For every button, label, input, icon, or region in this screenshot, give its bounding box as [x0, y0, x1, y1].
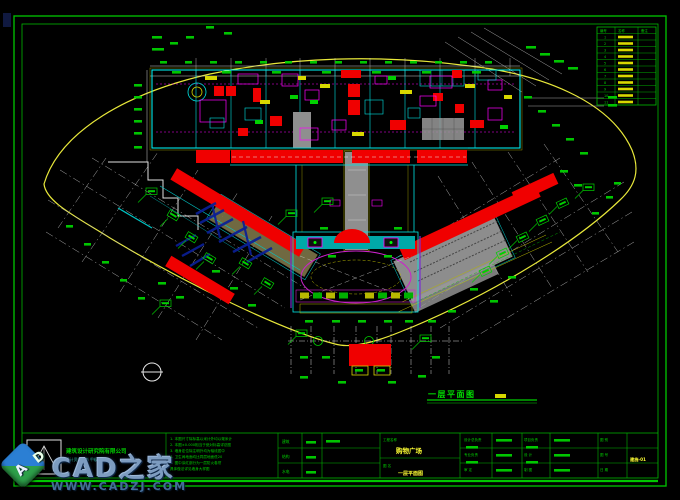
plan-shape: [238, 128, 248, 136]
plan-shape: [452, 70, 462, 78]
plan-text: 日 期: [600, 467, 609, 472]
dimension-text-blob: [152, 36, 162, 39]
dimension-text-blob: [422, 71, 431, 74]
dimension-text-blob: [120, 279, 127, 282]
callout-leader: [138, 195, 146, 203]
schedule-row-name: [618, 55, 633, 58]
dimension-text-blob: [235, 61, 242, 64]
callout-leader: [278, 217, 286, 225]
schedule-row-name: [618, 94, 633, 97]
schedule-row-name: [618, 81, 633, 84]
plan-shape: [253, 88, 261, 102]
dimension-text-blob: [310, 61, 317, 64]
dimension-text-blob: [300, 356, 308, 359]
callout-leader: [529, 224, 537, 232]
plan-shape: [500, 125, 508, 129]
dimension-text-blob: [432, 356, 440, 359]
schedule-row-name: [618, 42, 633, 45]
plan-shape: [305, 90, 319, 100]
dimension-text-blob: [360, 61, 367, 64]
dimension-text-blob: [554, 454, 570, 457]
plan-text: 项目负责: [524, 437, 538, 442]
plan-shape: [58, 158, 106, 228]
schedule-header: 名称: [618, 28, 625, 33]
dimension-text-blob: [206, 26, 214, 29]
dimension-text-blob: [138, 297, 145, 300]
dimension-text-blob: [410, 61, 417, 64]
plan-shape: [332, 120, 346, 130]
plan-shape: [484, 28, 562, 74]
schedule-row-no: 2: [604, 42, 606, 46]
entrance-canopy: [349, 344, 391, 366]
dimension-text-blob: [377, 369, 385, 372]
plan-shape: [200, 100, 226, 122]
dimension-text-blob: [134, 132, 142, 135]
dimension-text-blob: [272, 71, 281, 74]
plan-shape: [391, 293, 400, 299]
dimension-text-blob: [300, 376, 308, 379]
dimension-text-blob: [540, 53, 550, 56]
plan-shape: [488, 108, 502, 120]
plan-shape: [375, 76, 387, 84]
plan-shape: [210, 118, 224, 128]
dimension-callout-text: [298, 332, 305, 334]
plan-shape: [348, 100, 360, 115]
plan-shape: [205, 76, 217, 80]
plan-shape: [298, 76, 306, 80]
dimension-text-blob: [384, 255, 392, 258]
plan-text: 设 计: [524, 452, 533, 457]
schedule-row-no: 6: [604, 68, 606, 72]
plan-shape: [238, 74, 258, 84]
dimension-text-blob: [158, 282, 166, 285]
schedule-row-no: 7: [604, 74, 606, 78]
corner-smudge: [3, 13, 11, 27]
dimension-text-blob: [170, 42, 178, 45]
plan-text: 专业负责: [464, 452, 478, 457]
dimension-text-blob: [460, 61, 467, 64]
plan-shape: [320, 84, 330, 88]
drawing-title-text: 一层平面图: [428, 390, 476, 399]
floor-plan-drawing: 一层平面图建筑设计研究院有限公司设计资质证书 甲级1. 本图尺寸除标高以米计外均…: [0, 0, 680, 500]
callout-leader: [160, 219, 168, 227]
dimension-text-blob: [230, 287, 238, 290]
plan-shape: [488, 80, 502, 90]
dimension-text-blob: [332, 320, 340, 323]
dimension-text-blob: [222, 71, 231, 74]
cad-drawing-canvas: 一层平面图建筑设计研究院有限公司设计资质证书 甲级1. 本图尺寸除标高以米计外均…: [0, 0, 680, 500]
dimension-text-blob: [466, 446, 478, 449]
schedule-row-no: 4: [604, 55, 606, 59]
dimension-text-blob: [394, 227, 402, 230]
dimension-callout-text: [559, 201, 566, 206]
dimension-text-blob: [84, 243, 91, 246]
callout-leader: [509, 241, 517, 249]
schedule-row-no: 1: [604, 35, 606, 39]
dimension-callout-text: [148, 190, 155, 192]
plan-text: 水电: [282, 469, 290, 474]
plan-shape: [260, 100, 270, 104]
dimension-text-blob: [306, 441, 316, 444]
corridor-red: [231, 150, 343, 163]
plan-shape: [270, 116, 282, 126]
dimension-text-blob: [355, 369, 363, 372]
plan-shape: [404, 293, 413, 299]
left-wing-red: [170, 168, 305, 256]
plan-shape: [365, 293, 374, 299]
plan-shape: [339, 293, 348, 299]
dimension-text-blob: [405, 320, 413, 323]
dimension-text-blob: [185, 61, 192, 64]
dimension-text-blob: [328, 255, 336, 258]
plan-shape: [352, 132, 364, 136]
corridor-red: [417, 150, 467, 163]
dimension-text-blob: [554, 60, 564, 63]
drawing-number: 建施-01: [629, 456, 646, 463]
dimension-text-blob: [248, 304, 256, 307]
schedule-row-no: 3: [604, 48, 606, 52]
dimension-text-blob: [568, 67, 578, 70]
left-wing-red-outer: [165, 256, 235, 304]
schedule-row-name: [618, 88, 633, 91]
plan-shape: [192, 87, 202, 97]
dimension-text-blob: [306, 456, 316, 459]
dimension-text-blob: [608, 96, 617, 99]
dimension-text-blob: [134, 96, 142, 99]
dimension-text-blob: [574, 184, 582, 187]
dimension-text-blob: [134, 120, 142, 123]
plan-shape: [341, 70, 361, 78]
dimension-text-blob: [224, 32, 232, 35]
spiral-stair: [188, 83, 206, 101]
corridor-red: [352, 150, 410, 163]
dimension-callout-text: [162, 302, 169, 304]
callout-leader: [575, 191, 583, 199]
plan-text: 建筑: [282, 439, 290, 444]
inner-border: [22, 24, 658, 478]
dimension-text-blob: [306, 471, 316, 474]
dimension-text-blob: [485, 61, 492, 64]
plan-shape: [300, 293, 309, 299]
dimension-text-blob: [470, 288, 478, 291]
dimension-text-blob: [580, 152, 588, 155]
plan-shape: [400, 90, 412, 94]
dimension-text-blob: [326, 440, 340, 443]
dimension-text-blob: [526, 46, 536, 49]
schedule-row-no: 10: [604, 94, 608, 98]
plan-shape: [508, 152, 588, 272]
dimension-text-blob: [566, 138, 574, 141]
dimension-text-blob: [428, 320, 436, 323]
plan-shape: [504, 95, 512, 99]
plan-shape: [390, 120, 406, 130]
dimension-text-blob: [358, 320, 366, 323]
plan-shape: [311, 260, 401, 294]
plan-shape: [245, 108, 261, 120]
schedule-row-name: [618, 101, 633, 104]
plan-shape: [378, 293, 387, 299]
dimension-text-blob: [338, 381, 346, 384]
plan-shape: [470, 120, 484, 128]
plan-shape: [408, 108, 420, 118]
dimension-text-blob: [592, 212, 599, 215]
dimension-text-blob: [472, 71, 481, 74]
dimension-text-blob: [320, 227, 328, 230]
plan-text: 图 别: [600, 437, 609, 442]
dimension-text-blob: [210, 61, 217, 64]
dimension-text-blob: [496, 454, 512, 457]
project-label: 工程名称: [383, 437, 397, 442]
plan-text: 结构: [282, 454, 290, 459]
dimension-callout-text: [324, 200, 331, 202]
dimension-text-blob: [305, 320, 313, 323]
dimension-text-blob: [614, 182, 621, 185]
plan-shape: [82, 152, 158, 262]
plan-shape: [150, 68, 522, 150]
dimension-callout-text: [288, 212, 295, 214]
plan-shape: [255, 120, 263, 124]
dimension-text-blob: [212, 270, 220, 273]
plan-shape: [160, 186, 300, 270]
callout-leader: [288, 337, 296, 345]
schedule-row-name: [618, 68, 633, 71]
dimension-text-blob: [385, 61, 392, 64]
dimension-text-blob: [418, 375, 426, 378]
plan-shape: [458, 37, 536, 86]
dimension-text-blob: [526, 446, 538, 449]
dimension-text-blob: [496, 439, 512, 442]
schedule-header: 备注: [641, 28, 648, 33]
dimension-text-blob: [552, 124, 560, 127]
dimension-text-blob: [526, 461, 538, 464]
plan-shape: [433, 93, 443, 101]
dimension-text-blob: [490, 300, 498, 303]
callout-leader: [549, 207, 557, 215]
schedule-row-no: 5: [604, 61, 606, 65]
dimension-callout-text: [539, 218, 546, 223]
dimension-text-blob: [285, 61, 292, 64]
dimension-text-blob: [172, 71, 181, 74]
dimension-text-blob: [606, 196, 613, 199]
plan-shape: [365, 100, 383, 114]
schedule-header: 编号: [600, 28, 607, 33]
dimension-text-blob: [384, 320, 392, 323]
dimension-text-blob: [335, 61, 342, 64]
dimension-text-blob: [186, 36, 194, 39]
plan-shape: [455, 104, 464, 113]
schedule-row-no: 9: [604, 87, 606, 91]
escalator-block: [293, 112, 311, 148]
dimension-text-blob: [102, 261, 109, 264]
dimension-text-blob: [66, 225, 73, 228]
plan-shape: [445, 42, 522, 92]
dimension-text-blob: [496, 469, 512, 472]
dimension-text-blob: [508, 276, 516, 279]
plan-text: 制 图: [524, 467, 533, 472]
dimension-text-blob: [134, 146, 142, 149]
dimension-text-blob: [538, 110, 546, 113]
sheet-name: 一层平面图: [398, 470, 423, 477]
dimension-text-blob: [448, 310, 456, 313]
plan-shape: [196, 150, 230, 163]
dimension-text-blob: [388, 381, 396, 384]
dimension-text-blob: [554, 469, 570, 472]
plan-shape: [313, 293, 322, 299]
plan-text: 设计总负责: [464, 437, 482, 442]
plan-shape: [290, 95, 298, 99]
plan-shape: [226, 86, 236, 96]
plan-text: 审 定: [464, 467, 473, 472]
plan-text: 图 号: [600, 452, 609, 457]
plan-shape: [330, 200, 340, 206]
cadzj-watermark: A D CAD之家 WWW.CADZJ.COM: [4, 442, 234, 500]
dimension-callout-text: [585, 186, 592, 188]
dimension-text-blob: [134, 84, 142, 87]
plan-shape: [390, 241, 393, 244]
project-name: 购物广场: [396, 446, 423, 455]
watermark-url: WWW.CADZJ.COM: [51, 480, 187, 493]
plan-shape: [182, 244, 204, 256]
plan-shape: [465, 84, 475, 88]
dimension-text-blob: [134, 108, 142, 111]
plan-shape: [214, 86, 224, 96]
north-wing-outline: [152, 70, 520, 148]
schedule-row-name: [618, 75, 633, 78]
plan-shape: [326, 293, 335, 299]
dimension-text-blob: [176, 296, 184, 299]
plan-shape: [388, 76, 396, 80]
schedule-row-name: [618, 62, 633, 65]
dimension-callout-text: [422, 337, 429, 339]
note-line: 1. 本图尺寸除标高以米计外均以毫米计: [170, 436, 232, 441]
dimension-text-blob: [260, 61, 267, 64]
dimension-text-blob: [466, 461, 478, 464]
sheet-label: 图 名: [383, 463, 391, 468]
plaza-steps: [108, 162, 198, 230]
plan-shape: [118, 208, 152, 228]
callout-leader: [314, 205, 322, 213]
plan-shape: [314, 241, 317, 244]
callout-leader: [412, 342, 420, 350]
plan-shape: [495, 394, 506, 398]
dimension-text-blob: [322, 71, 331, 74]
dimension-text-blob: [560, 170, 568, 173]
plan-shape: [348, 84, 360, 97]
dimension-text-blob: [554, 439, 570, 442]
schedule-row-name: [618, 49, 633, 52]
plan-shape: [310, 100, 318, 104]
dimension-text-blob: [152, 48, 164, 51]
dimension-text-blob: [524, 96, 532, 99]
plan-shape: [372, 200, 382, 206]
dimension-text-blob: [372, 71, 381, 74]
outer-border: [14, 16, 666, 486]
callout-leader: [152, 307, 160, 315]
schedule-row-no: 11: [604, 100, 608, 104]
schedule-row-no: 8: [604, 81, 606, 85]
dimension-text-blob: [435, 61, 442, 64]
dimension-text-blob: [160, 61, 167, 64]
schedule-row-name: [618, 36, 633, 39]
dimension-text-blob: [322, 356, 330, 359]
